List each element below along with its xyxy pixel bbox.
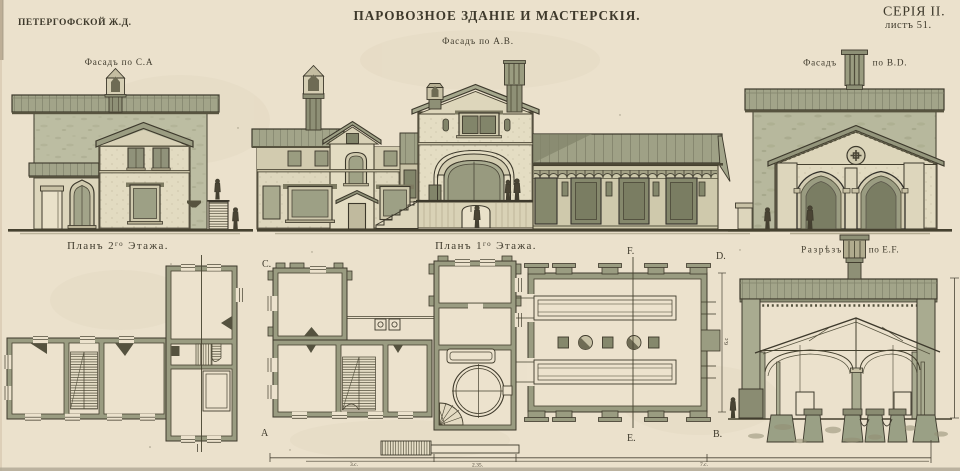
svg-text:F.: F. <box>627 246 634 257</box>
svg-text:Е.: Е. <box>627 433 636 444</box>
svg-text:2.35.: 2.35. <box>472 463 484 469</box>
svg-text:С.: С. <box>262 259 271 270</box>
svg-text:7.с.: 7.с. <box>700 462 709 468</box>
svg-text:СЕРІЯ ІІ.: СЕРІЯ ІІ. <box>883 5 945 20</box>
svg-text:по Е.F.: по Е.F. <box>869 245 900 255</box>
svg-text:А: А <box>261 428 269 439</box>
svg-text:по В.D.: по В.D. <box>873 58 908 68</box>
svg-text:ПЕТЕРГОФСКОЙ Ж.Д.: ПЕТЕРГОФСКОЙ Ж.Д. <box>18 16 132 28</box>
svg-text:В.: В. <box>713 429 722 440</box>
svg-text:D.: D. <box>716 251 726 262</box>
svg-text:Фасадъ: Фасадъ <box>803 58 837 68</box>
svg-text:3.с.: 3.с. <box>350 462 359 468</box>
svg-text:ПАРОВОЗНОЕ ЗДАНІЕ И МАСТЕРСКІЯ: ПАРОВОЗНОЕ ЗДАНІЕ И МАСТЕРСКІЯ. <box>353 8 640 23</box>
svg-text:Фасадъ по С.А: Фасадъ по С.А <box>85 57 154 67</box>
svg-text:6.с: 6.с <box>724 338 730 346</box>
svg-text:Фасадъ по А.В.: Фасадъ по А.В. <box>442 36 514 46</box>
svg-text:листъ 51.: листъ 51. <box>885 20 932 31</box>
svg-text:Разрѣзъ: Разрѣзъ <box>801 245 843 255</box>
